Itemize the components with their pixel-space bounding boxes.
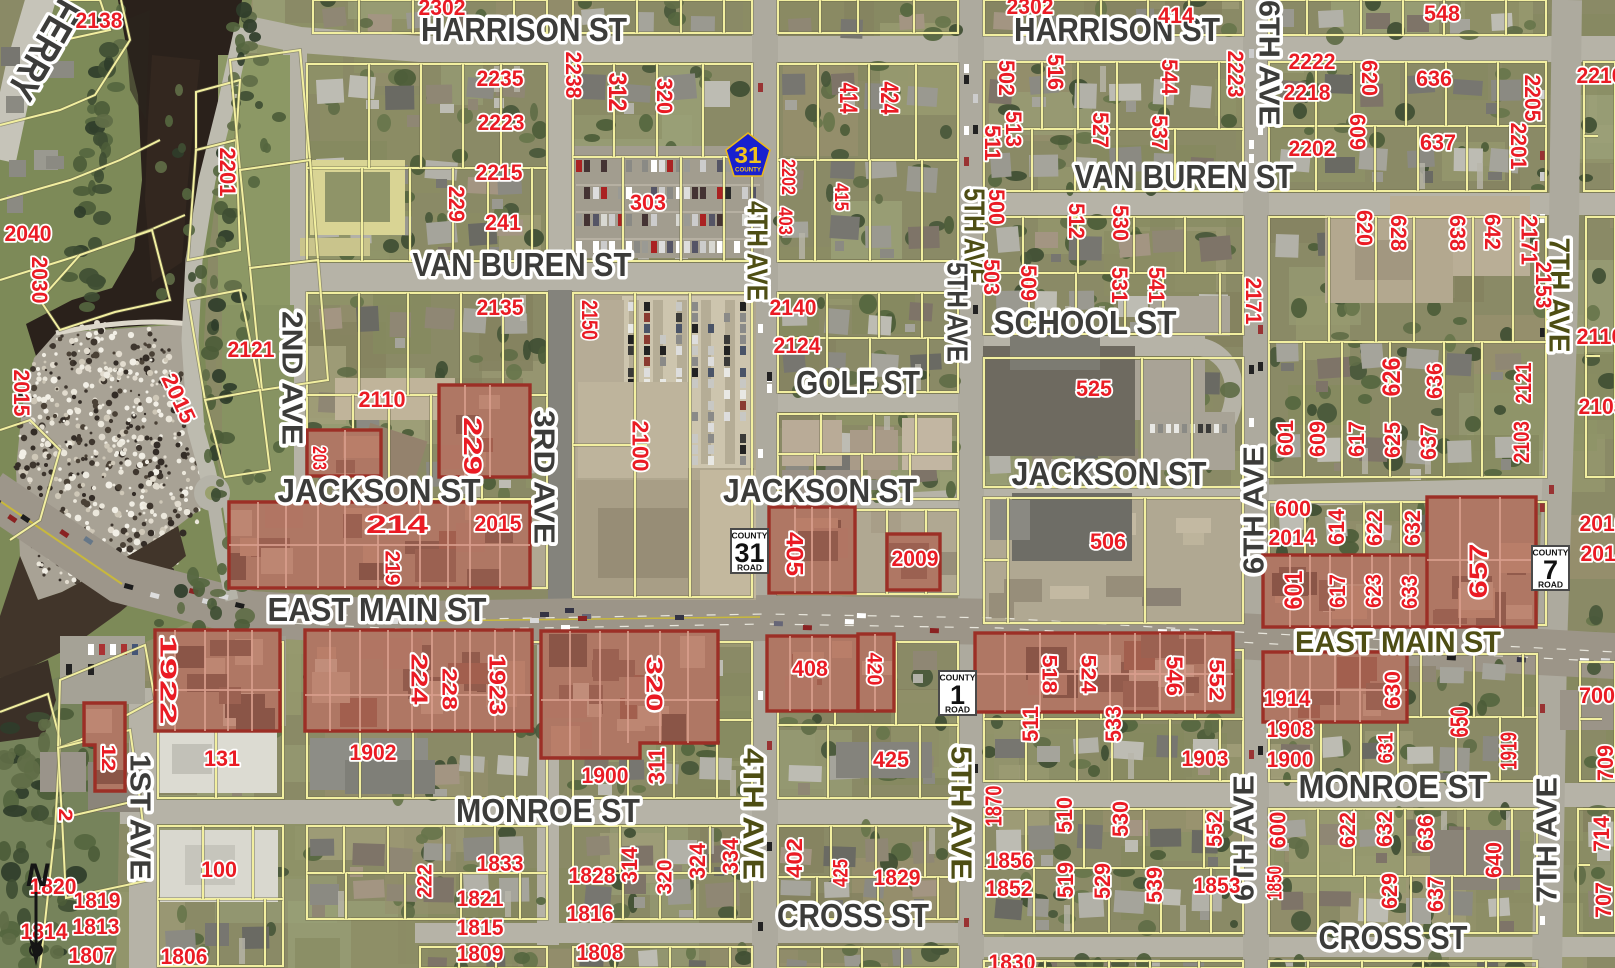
svg-text:1815: 1815 — [457, 915, 504, 940]
svg-text:636: 636 — [1422, 363, 1447, 399]
svg-text:1828: 1828 — [569, 863, 616, 888]
svg-text:408: 408 — [792, 656, 828, 681]
svg-text:630: 630 — [1380, 671, 1405, 709]
svg-text:511: 511 — [1018, 706, 1043, 742]
svg-text:625: 625 — [1380, 422, 1405, 458]
svg-text:1814: 1814 — [21, 919, 69, 944]
svg-text:1850: 1850 — [1264, 866, 1287, 900]
svg-text:MONROE ST: MONROE ST — [1299, 768, 1488, 805]
svg-text:334: 334 — [718, 837, 743, 874]
svg-text:324: 324 — [685, 842, 710, 879]
svg-text:320: 320 — [642, 657, 668, 712]
svg-text:2040: 2040 — [5, 221, 52, 246]
svg-text:601: 601 — [1273, 420, 1298, 456]
svg-text:SCHOOL ST: SCHOOL ST — [994, 304, 1177, 341]
svg-text:COUNTY: COUNTY — [735, 167, 762, 174]
svg-text:2030: 2030 — [27, 257, 52, 304]
svg-text:MONROE ST: MONROE ST — [456, 792, 640, 829]
svg-text:5TH AVE: 5TH AVE — [941, 262, 973, 362]
svg-text:2171: 2171 — [1241, 278, 1266, 325]
svg-text:425: 425 — [830, 859, 853, 887]
svg-text:219: 219 — [380, 551, 403, 586]
svg-text:629: 629 — [1377, 873, 1402, 909]
svg-text:12: 12 — [97, 745, 118, 772]
svg-text:2223: 2223 — [1223, 51, 1248, 98]
svg-text:414: 414 — [834, 83, 862, 114]
svg-text:2103: 2103 — [1579, 394, 1615, 419]
svg-text:609: 609 — [1305, 421, 1330, 457]
svg-text:623: 623 — [1361, 574, 1386, 608]
svg-text:2205: 2205 — [1520, 75, 1545, 122]
svg-text:228: 228 — [437, 668, 460, 710]
svg-text:640: 640 — [1480, 842, 1506, 878]
svg-text:2110: 2110 — [359, 387, 406, 412]
svg-text:530: 530 — [1108, 205, 1133, 241]
svg-text:2110: 2110 — [1577, 324, 1615, 349]
svg-text:622: 622 — [1362, 510, 1387, 546]
svg-text:2223: 2223 — [478, 110, 525, 135]
svg-text:1809: 1809 — [457, 941, 504, 966]
svg-text:637: 637 — [1416, 424, 1441, 460]
svg-text:2100: 2100 — [628, 421, 654, 472]
svg-text:2238: 2238 — [561, 52, 586, 99]
svg-text:314: 314 — [617, 846, 642, 883]
svg-text:633: 633 — [1397, 575, 1422, 609]
svg-text:2222: 2222 — [1289, 49, 1336, 74]
svg-text:502: 502 — [994, 60, 1019, 96]
svg-text:203: 203 — [308, 446, 329, 470]
svg-text:622: 622 — [1335, 812, 1360, 848]
svg-text:2302: 2302 — [1007, 0, 1054, 19]
svg-text:2140: 2140 — [770, 295, 817, 320]
svg-text:2009: 2009 — [892, 546, 939, 571]
svg-text:626: 626 — [1378, 358, 1406, 397]
svg-text:424: 424 — [875, 82, 903, 115]
svg-text:600: 600 — [1264, 812, 1290, 849]
svg-text:516: 516 — [1043, 54, 1068, 90]
svg-text:709: 709 — [1593, 745, 1615, 781]
svg-text:620: 620 — [1357, 60, 1382, 96]
svg-text:2215: 2215 — [476, 160, 523, 185]
svg-text:552: 552 — [1204, 659, 1227, 701]
svg-text:2201: 2201 — [215, 148, 240, 197]
svg-text:1908: 1908 — [1267, 717, 1314, 742]
svg-text:1833: 1833 — [477, 851, 524, 876]
svg-text:2014: 2014 — [1269, 525, 1317, 550]
svg-text:EAST MAIN ST: EAST MAIN ST — [268, 591, 487, 628]
svg-text:2202: 2202 — [777, 159, 798, 195]
svg-text:JACKSON ST: JACKSON ST — [278, 472, 481, 509]
svg-text:ROAD: ROAD — [737, 563, 762, 573]
svg-text:2103: 2103 — [1509, 421, 1534, 463]
svg-text:2201: 2201 — [1506, 123, 1531, 170]
svg-text:420: 420 — [862, 653, 885, 686]
svg-text:506: 506 — [1090, 529, 1126, 554]
svg-text:2218: 2218 — [1284, 80, 1331, 105]
svg-text:2202: 2202 — [1289, 136, 1336, 161]
svg-text:312: 312 — [603, 73, 631, 112]
svg-text:1829: 1829 — [874, 865, 921, 890]
svg-text:1807: 1807 — [69, 943, 116, 968]
svg-text:1819: 1819 — [74, 888, 121, 913]
svg-text:650: 650 — [1446, 707, 1474, 738]
svg-text:2150: 2150 — [577, 300, 602, 340]
svg-text:552: 552 — [1202, 811, 1227, 847]
svg-text:518: 518 — [1037, 655, 1060, 694]
svg-text:512: 512 — [1064, 203, 1089, 239]
svg-text:311: 311 — [643, 747, 669, 784]
svg-text:VAN BUREN ST: VAN BUREN ST — [1075, 158, 1294, 195]
svg-text:544: 544 — [1157, 59, 1182, 96]
svg-text:1816: 1816 — [567, 901, 614, 926]
svg-text:2014: 2014 — [1581, 541, 1615, 566]
svg-text:1923: 1923 — [485, 655, 511, 715]
svg-text:638: 638 — [1445, 215, 1470, 251]
svg-text:1856: 1856 — [987, 848, 1034, 873]
svg-text:632: 632 — [1400, 510, 1425, 546]
svg-text:229: 229 — [444, 186, 469, 222]
svg-text:2ND AVE: 2ND AVE — [276, 311, 308, 445]
svg-text:601: 601 — [1280, 570, 1308, 609]
svg-text:2015: 2015 — [9, 370, 34, 417]
svg-text:714: 714 — [1589, 815, 1614, 852]
svg-text:1808: 1808 — [577, 940, 624, 965]
svg-text:637: 637 — [1423, 876, 1448, 912]
svg-text:31: 31 — [735, 142, 762, 168]
svg-text:JACKSON ST: JACKSON ST — [1012, 455, 1207, 492]
svg-text:2210: 2210 — [1577, 63, 1615, 88]
svg-text:241: 241 — [485, 210, 521, 235]
svg-text:510: 510 — [1052, 797, 1077, 833]
svg-text:614: 614 — [1324, 508, 1349, 545]
svg-text:EAST MAIN ST: EAST MAIN ST — [1295, 626, 1501, 659]
svg-text:1853: 1853 — [1194, 873, 1241, 898]
svg-text:6TH AVE: 6TH AVE — [1253, 0, 1285, 126]
svg-text:1902: 1902 — [350, 740, 397, 765]
svg-text:546: 546 — [1162, 656, 1188, 696]
svg-text:1813: 1813 — [73, 914, 120, 939]
svg-text:539: 539 — [1142, 867, 1167, 903]
svg-text:1919: 1919 — [1495, 732, 1521, 770]
svg-text:403: 403 — [774, 207, 795, 235]
svg-text:GOLF ST: GOLF ST — [796, 364, 920, 401]
svg-text:2235: 2235 — [477, 66, 524, 91]
svg-text:1900: 1900 — [1267, 747, 1314, 772]
svg-text:7TH AVE: 7TH AVE — [1531, 777, 1563, 903]
svg-text:405: 405 — [780, 532, 807, 576]
svg-text:VAN BUREN ST: VAN BUREN ST — [413, 246, 632, 283]
svg-text:530: 530 — [1108, 801, 1133, 837]
svg-text:617: 617 — [1344, 421, 1369, 457]
svg-text:1852: 1852 — [986, 876, 1033, 901]
svg-text:5TH AVE: 5TH AVE — [945, 746, 977, 880]
svg-text:511: 511 — [980, 125, 1005, 161]
svg-text:2135: 2135 — [477, 295, 524, 320]
svg-text:2121: 2121 — [228, 337, 275, 362]
svg-text:541: 541 — [1144, 267, 1169, 303]
svg-text:N: N — [26, 857, 50, 893]
svg-text:414: 414 — [1158, 3, 1195, 28]
svg-text:2121: 2121 — [1511, 363, 1536, 404]
svg-text:224: 224 — [407, 654, 433, 705]
svg-text:617: 617 — [1325, 574, 1350, 608]
svg-text:524: 524 — [1076, 655, 1099, 694]
svg-text:620: 620 — [1352, 210, 1377, 246]
svg-text:214: 214 — [366, 511, 428, 539]
svg-text:2302: 2302 — [419, 0, 466, 20]
svg-text:ROAD: ROAD — [945, 705, 970, 715]
svg-text:320: 320 — [654, 860, 677, 895]
svg-text:1903: 1903 — [1182, 746, 1229, 771]
svg-text:657: 657 — [1465, 544, 1493, 599]
svg-text:222: 222 — [414, 864, 437, 898]
svg-text:1922: 1922 — [156, 636, 182, 725]
svg-text:CROSS ST: CROSS ST — [1319, 919, 1468, 956]
svg-text:320: 320 — [652, 78, 677, 114]
svg-text:402: 402 — [782, 838, 807, 878]
svg-text:529: 529 — [1090, 863, 1115, 899]
svg-text:131: 131 — [204, 746, 240, 771]
svg-text:6TH AVE: 6TH AVE — [1238, 446, 1270, 574]
svg-text:CROSS ST: CROSS ST — [777, 897, 929, 934]
svg-text:531: 531 — [1107, 267, 1132, 303]
svg-text:100: 100 — [201, 857, 237, 882]
svg-text:1870: 1870 — [980, 786, 1006, 827]
svg-text:1830: 1830 — [989, 950, 1036, 968]
svg-text:JACKSON ST: JACKSON ST — [723, 472, 917, 509]
svg-text:1ST AVE: 1ST AVE — [124, 754, 156, 880]
svg-text:4TH AVE: 4TH AVE — [741, 201, 773, 301]
svg-text:509: 509 — [1016, 265, 1041, 301]
svg-text:642: 642 — [1480, 214, 1505, 250]
svg-text:533: 533 — [1101, 706, 1126, 742]
svg-text:700: 700 — [1579, 683, 1615, 708]
svg-text:1900: 1900 — [582, 763, 629, 788]
svg-text:600: 600 — [1275, 496, 1311, 521]
svg-text:628: 628 — [1386, 215, 1411, 251]
svg-text:632: 632 — [1372, 811, 1397, 847]
svg-text:707: 707 — [1591, 882, 1615, 918]
svg-text:537: 537 — [1147, 115, 1172, 151]
svg-text:2010: 2010 — [1580, 511, 1615, 536]
svg-text:2124: 2124 — [774, 333, 822, 358]
svg-text:1914: 1914 — [1264, 686, 1312, 711]
svg-text:609: 609 — [1345, 114, 1370, 150]
svg-text:1806: 1806 — [161, 944, 208, 968]
svg-text:525: 525 — [1076, 376, 1112, 401]
svg-text:519: 519 — [1053, 862, 1078, 898]
svg-text:636: 636 — [1413, 815, 1438, 851]
svg-text:503: 503 — [979, 259, 1004, 295]
svg-text:1821: 1821 — [457, 886, 504, 911]
svg-text:229: 229 — [458, 417, 486, 475]
svg-text:3RD AVE: 3RD AVE — [528, 410, 560, 544]
svg-text:ROAD: ROAD — [1538, 580, 1563, 590]
svg-text:548: 548 — [1424, 1, 1460, 26]
svg-text:500: 500 — [984, 189, 1009, 225]
svg-text:631: 631 — [1375, 732, 1398, 763]
svg-text:2171: 2171 — [1517, 215, 1543, 265]
svg-text:425: 425 — [873, 747, 909, 772]
svg-text:2015: 2015 — [475, 511, 522, 536]
svg-text:527: 527 — [1088, 112, 1113, 148]
svg-text:303: 303 — [630, 190, 666, 215]
svg-text:2153: 2153 — [1531, 262, 1556, 309]
svg-text:2138: 2138 — [76, 8, 123, 33]
svg-text:2: 2 — [54, 809, 75, 822]
svg-text:637: 637 — [1420, 130, 1456, 155]
svg-text:415: 415 — [830, 183, 851, 211]
svg-text:636: 636 — [1416, 66, 1452, 91]
